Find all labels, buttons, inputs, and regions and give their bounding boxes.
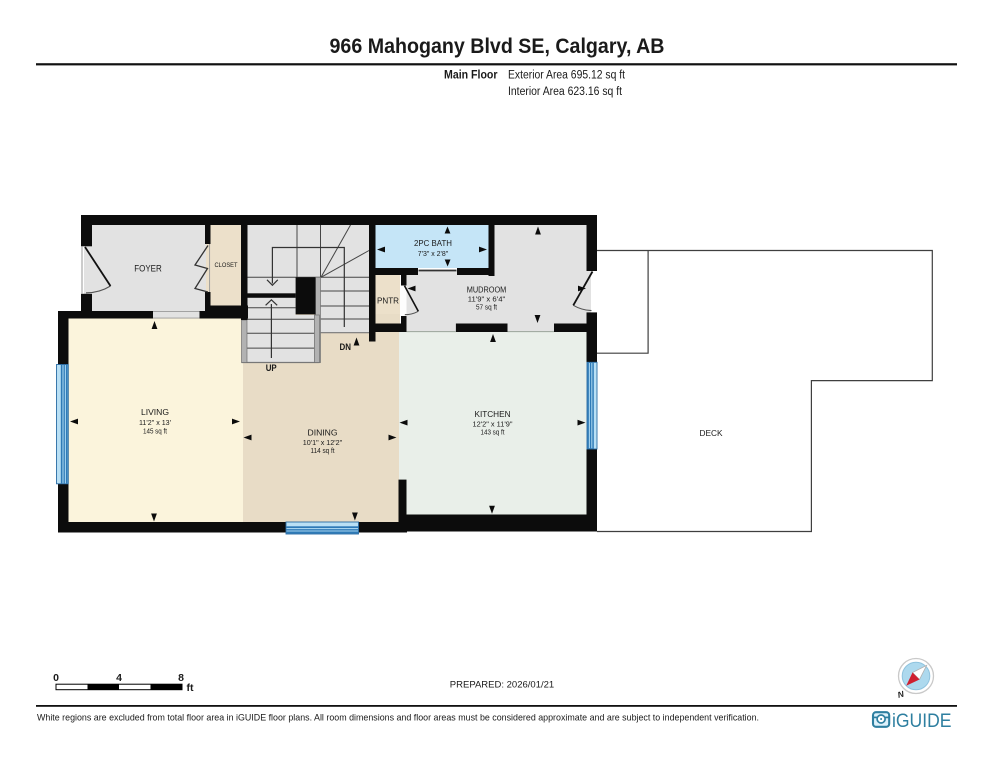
svg-text:145 sq ft: 145 sq ft xyxy=(143,427,168,436)
svg-text:8: 8 xyxy=(178,672,184,684)
svg-text:iGUIDE: iGUIDE xyxy=(892,710,952,732)
svg-text:FOYER: FOYER xyxy=(134,264,162,274)
svg-text:143 sq ft: 143 sq ft xyxy=(481,428,506,437)
svg-text:2PC BATH: 2PC BATH xyxy=(414,238,452,248)
svg-text:Main Floor: Main Floor xyxy=(444,70,498,82)
svg-text:N: N xyxy=(896,688,905,699)
svg-text:7'3" x 2'8": 7'3" x 2'8" xyxy=(418,249,449,258)
svg-text:LIVING: LIVING xyxy=(141,407,169,417)
svg-text:ft: ft xyxy=(187,682,194,694)
svg-text:UP: UP xyxy=(266,363,277,373)
svg-text:CLOSET: CLOSET xyxy=(215,262,238,269)
svg-text:MUDROOM: MUDROOM xyxy=(467,285,507,295)
svg-text:4: 4 xyxy=(116,672,122,684)
svg-text:57 sq ft: 57 sq ft xyxy=(476,303,498,312)
svg-text:KITCHEN: KITCHEN xyxy=(475,409,511,419)
svg-text:DN: DN xyxy=(339,342,351,352)
svg-text:PREPARED: 2026/01/21: PREPARED: 2026/01/21 xyxy=(450,680,554,691)
svg-text:DECK: DECK xyxy=(700,428,723,438)
svg-text:0: 0 xyxy=(53,672,59,684)
svg-text:114 sq ft: 114 sq ft xyxy=(311,446,336,455)
svg-text:DINING: DINING xyxy=(308,428,338,438)
svg-text:Exterior Area 695.12 sq ft: Exterior Area 695.12 sq ft xyxy=(508,70,626,82)
svg-text:966 Mahogany Blvd SE, Calgary,: 966 Mahogany Blvd SE, Calgary, AB xyxy=(330,35,665,58)
svg-text:Interior Area 623.16 sq ft: Interior Area 623.16 sq ft xyxy=(508,86,623,98)
svg-text:PNTR: PNTR xyxy=(377,296,399,306)
svg-text:White regions are excluded fro: White regions are excluded from total fl… xyxy=(37,713,759,723)
